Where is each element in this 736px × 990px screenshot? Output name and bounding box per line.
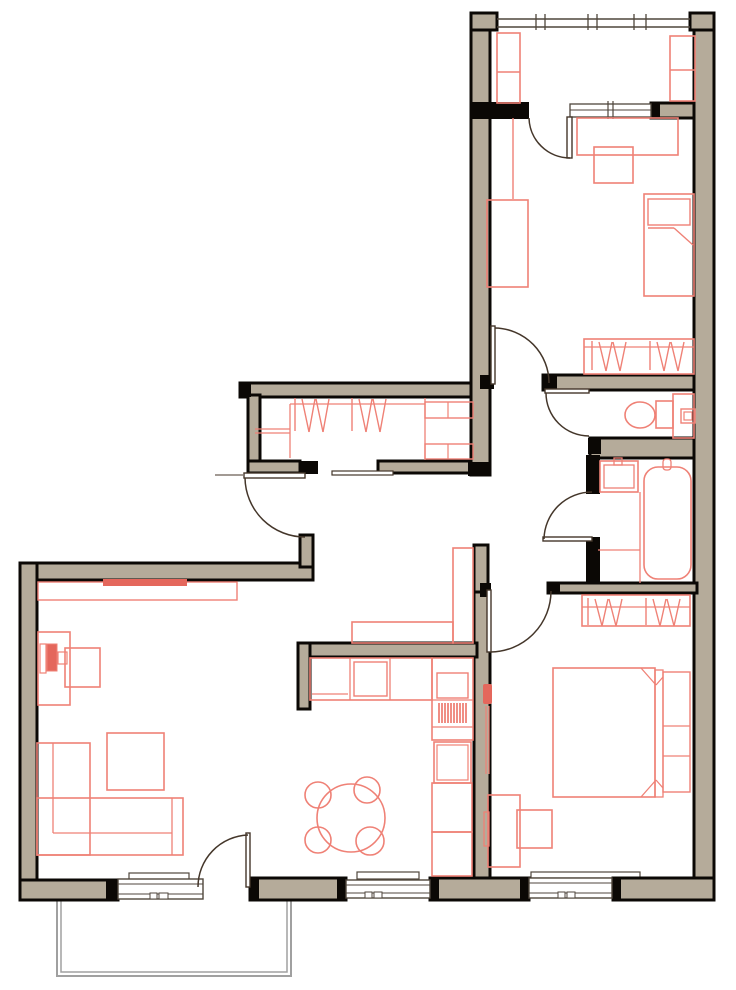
wall-bath-west-lower <box>587 554 599 585</box>
kitchen-window-mullion <box>374 892 382 898</box>
wall-closet-north <box>240 383 471 397</box>
bedroom2-radiator <box>483 684 492 704</box>
wc-door-leaf <box>545 389 589 393</box>
living-window-mullion <box>159 893 168 899</box>
jamb-balcony-window-east <box>651 103 660 118</box>
wall-south-d <box>613 878 714 900</box>
wall-west-lower <box>20 563 37 900</box>
jamb-wc-stub <box>588 438 601 454</box>
jamb-bedroom2-cap <box>548 583 560 594</box>
jamb-living-window-west <box>106 880 118 900</box>
jamb-kitchen-window-west <box>337 878 346 900</box>
wall-south-b <box>250 878 346 900</box>
jamb-balcony-door-east <box>250 878 259 900</box>
jamb-closet-door <box>299 461 318 474</box>
wall-wc-bath-divider <box>590 438 694 458</box>
jamb-bedroom2-window-east <box>612 878 621 900</box>
wall-right <box>694 14 714 898</box>
living-window-mullion <box>150 893 157 899</box>
wall-south-c <box>430 878 529 900</box>
balcony-door-leaf <box>567 117 572 158</box>
wall-south-a <box>20 880 118 900</box>
entry-door-leaf <box>244 473 305 478</box>
jamb-bedroom1-door-east <box>543 375 557 390</box>
jamb-westwall-end <box>468 462 489 476</box>
kitchen-window-sill <box>357 872 419 879</box>
jamb-kitchen-window-east <box>430 878 439 900</box>
background <box>0 0 736 990</box>
jamb-closet-nw <box>240 383 251 397</box>
bedroom2-window-mullion <box>567 892 575 898</box>
wall-living-north <box>20 563 313 580</box>
wall-bath-west-upper <box>587 456 599 493</box>
wall-closet-south-west <box>248 461 300 473</box>
jamb-bedroom2-window-west <box>520 878 529 900</box>
wall-bedroom2-north <box>548 583 697 593</box>
living-desk-monitor <box>47 644 57 671</box>
kitchen-window <box>346 880 430 898</box>
floor-plan-canvas <box>0 0 736 990</box>
wall-entry-stub <box>300 535 313 567</box>
living-tv <box>103 579 187 586</box>
kitchen-window-mullion <box>365 892 372 898</box>
floor-plan-page <box>0 0 736 990</box>
wall-balcony-divider-west <box>471 103 528 118</box>
bedroom1-door-leaf <box>491 326 495 384</box>
wall-kitchen-west-bar <box>298 643 310 709</box>
bedroom2-door-leaf <box>487 590 491 652</box>
wall-corner-ne-block <box>690 13 714 30</box>
bedroom2-window-mullion <box>558 892 565 898</box>
living-balcony-door-leaf <box>246 833 250 887</box>
wall-bedroom1-south <box>543 375 694 390</box>
wall-kitchen-north <box>298 643 477 657</box>
bathroom-door-leaf <box>543 537 592 541</box>
wall-corner-nw-block <box>471 13 497 30</box>
closet-sliding-door-leaf <box>332 471 393 475</box>
